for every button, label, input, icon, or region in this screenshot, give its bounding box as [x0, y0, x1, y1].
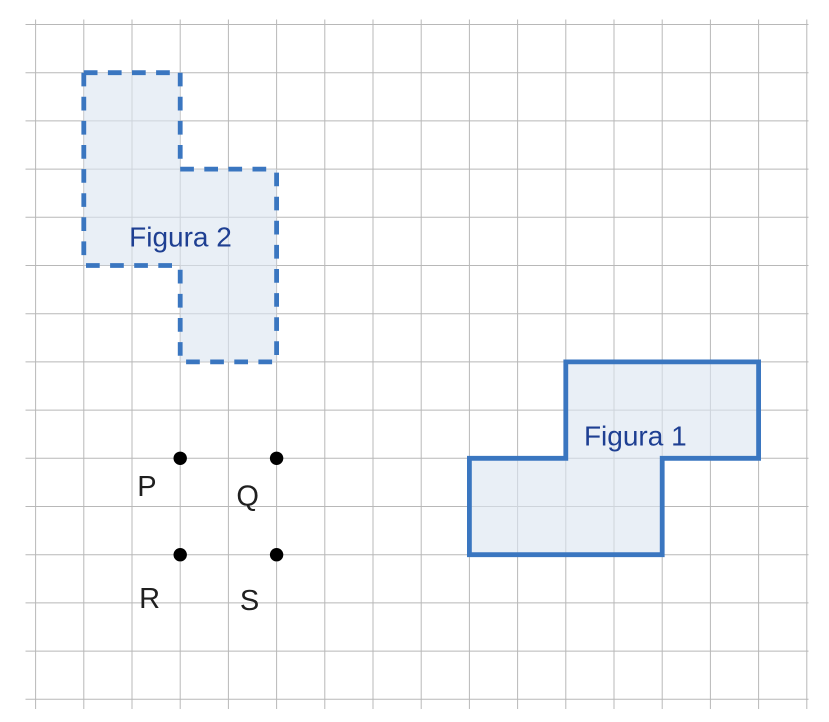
svg-text:Figura 1: Figura 1	[584, 421, 687, 452]
svg-text:Q: Q	[236, 481, 259, 513]
svg-text:P: P	[137, 471, 156, 503]
svg-text:R: R	[139, 583, 160, 615]
svg-text:Figura 2: Figura 2	[129, 222, 232, 253]
svg-text:S: S	[240, 585, 259, 617]
